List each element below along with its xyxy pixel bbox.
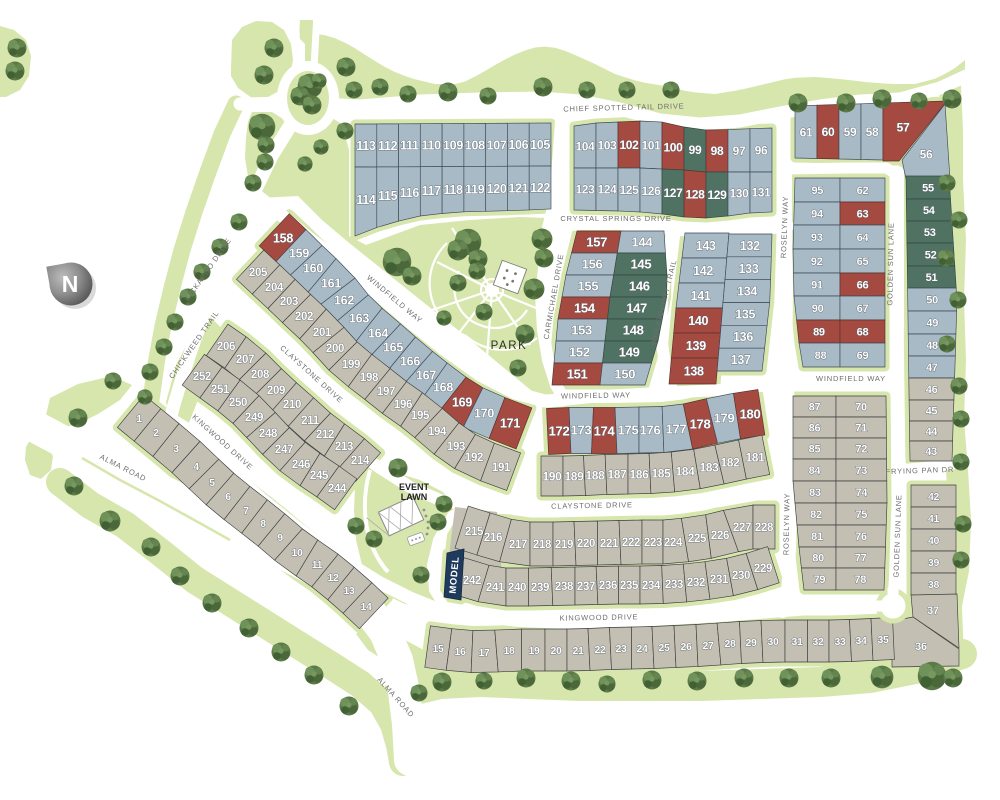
svg-text:80: 80 — [812, 553, 824, 565]
svg-text:64: 64 — [857, 232, 870, 244]
svg-text:1: 1 — [136, 413, 142, 425]
svg-text:120: 120 — [487, 182, 507, 196]
svg-text:101: 101 — [641, 138, 661, 152]
svg-text:233: 233 — [665, 579, 683, 591]
svg-text:188: 188 — [585, 468, 605, 482]
svg-text:247: 247 — [275, 444, 293, 456]
svg-text:118: 118 — [443, 183, 463, 197]
svg-text:212: 212 — [316, 429, 334, 441]
svg-text:138: 138 — [684, 365, 704, 379]
svg-text:93: 93 — [811, 232, 823, 244]
svg-text:81: 81 — [811, 531, 823, 543]
svg-text:GOLDEN SUN LANE: GOLDEN SUN LANE — [885, 222, 895, 305]
svg-text:162: 162 — [334, 294, 354, 308]
svg-text:215: 215 — [465, 526, 484, 538]
svg-text:67: 67 — [857, 303, 869, 315]
svg-text:169: 169 — [452, 396, 472, 410]
svg-text:239: 239 — [531, 582, 549, 594]
svg-text:56: 56 — [920, 147, 933, 161]
svg-text:124: 124 — [597, 183, 617, 197]
svg-text:147: 147 — [626, 301, 647, 316]
svg-text:227: 227 — [733, 522, 751, 534]
svg-text:231: 231 — [710, 574, 729, 586]
svg-text:189: 189 — [564, 469, 584, 483]
svg-text:26: 26 — [680, 641, 692, 653]
svg-text:199: 199 — [342, 359, 360, 371]
svg-text:24: 24 — [636, 643, 648, 655]
svg-text:WINDFIELD WAY: WINDFIELD WAY — [561, 390, 631, 400]
svg-text:95: 95 — [811, 185, 823, 197]
svg-text:111: 111 — [400, 139, 419, 153]
svg-text:76: 76 — [855, 531, 867, 543]
svg-text:207: 207 — [236, 354, 254, 366]
svg-text:186: 186 — [629, 467, 649, 481]
svg-text:16: 16 — [454, 646, 466, 658]
svg-text:250: 250 — [229, 397, 247, 409]
svg-text:141: 141 — [691, 289, 711, 303]
svg-text:75: 75 — [855, 509, 867, 521]
svg-text:74: 74 — [856, 487, 869, 499]
svg-text:134: 134 — [737, 285, 757, 299]
svg-text:228: 228 — [755, 522, 774, 534]
svg-text:72: 72 — [855, 444, 867, 456]
svg-text:143: 143 — [696, 239, 716, 253]
svg-text:18: 18 — [503, 645, 515, 657]
svg-text:ROSELYN WAY: ROSELYN WAY — [781, 493, 791, 556]
svg-text:137: 137 — [731, 353, 751, 367]
svg-text:190: 190 — [542, 469, 562, 483]
svg-text:27: 27 — [702, 640, 714, 652]
svg-text:57: 57 — [897, 120, 910, 134]
svg-text:209: 209 — [267, 385, 285, 397]
svg-text:234: 234 — [642, 580, 661, 592]
svg-text:164: 164 — [368, 327, 388, 341]
svg-text:202: 202 — [295, 311, 313, 323]
svg-text:165: 165 — [383, 341, 403, 355]
svg-text:182: 182 — [720, 455, 740, 469]
svg-text:251: 251 — [211, 384, 230, 396]
svg-text:109: 109 — [443, 139, 463, 153]
svg-text:192: 192 — [465, 452, 483, 464]
svg-text:2: 2 — [153, 427, 159, 439]
svg-text:156: 156 — [582, 257, 603, 272]
svg-text:5: 5 — [209, 477, 215, 489]
svg-text:20: 20 — [550, 645, 562, 657]
svg-text:29: 29 — [745, 637, 757, 649]
svg-text:LAWN: LAWN — [401, 492, 428, 502]
svg-text:4: 4 — [193, 461, 199, 473]
svg-text:131: 131 — [751, 186, 771, 200]
svg-text:40: 40 — [928, 535, 940, 547]
svg-text:97: 97 — [733, 144, 746, 158]
svg-text:86: 86 — [809, 423, 821, 435]
svg-text:114: 114 — [356, 193, 376, 207]
svg-text:12: 12 — [327, 572, 339, 584]
svg-text:145: 145 — [631, 257, 652, 272]
svg-text:84: 84 — [809, 465, 822, 477]
svg-text:110: 110 — [422, 139, 442, 153]
svg-text:7: 7 — [243, 505, 249, 517]
svg-text:168: 168 — [433, 381, 453, 395]
svg-text:171: 171 — [500, 417, 520, 431]
svg-text:198: 198 — [360, 372, 379, 384]
svg-text:KINGWOOD DRIVE: KINGWOOD DRIVE — [560, 612, 639, 622]
svg-text:149: 149 — [619, 345, 640, 360]
svg-text:30: 30 — [767, 636, 779, 648]
svg-text:87: 87 — [809, 402, 821, 414]
svg-text:116: 116 — [400, 186, 420, 200]
svg-text:41: 41 — [928, 513, 940, 525]
svg-text:31: 31 — [791, 636, 803, 648]
svg-text:14: 14 — [360, 601, 372, 613]
svg-text:230: 230 — [732, 570, 750, 582]
svg-text:36: 36 — [915, 641, 927, 653]
svg-text:117: 117 — [422, 184, 442, 198]
svg-text:219: 219 — [555, 539, 573, 551]
svg-text:232: 232 — [687, 577, 705, 589]
svg-text:108: 108 — [465, 138, 485, 152]
svg-text:94: 94 — [811, 209, 824, 221]
svg-text:43: 43 — [925, 446, 937, 458]
svg-text:225: 225 — [688, 533, 707, 545]
svg-text:21: 21 — [572, 645, 584, 657]
svg-text:38: 38 — [928, 579, 940, 591]
svg-text:3: 3 — [173, 443, 179, 455]
svg-text:237: 237 — [577, 581, 595, 593]
svg-text:42: 42 — [928, 491, 940, 503]
svg-text:214: 214 — [351, 455, 370, 467]
svg-text:35: 35 — [877, 634, 889, 646]
svg-text:99: 99 — [689, 143, 702, 157]
svg-text:53: 53 — [924, 227, 936, 239]
svg-text:71: 71 — [855, 423, 867, 435]
svg-text:46: 46 — [926, 384, 938, 396]
svg-text:245: 245 — [310, 470, 329, 482]
svg-text:184: 184 — [675, 464, 695, 478]
svg-text:176: 176 — [640, 423, 661, 438]
svg-text:193: 193 — [447, 441, 465, 453]
svg-text:179: 179 — [714, 411, 735, 426]
svg-text:82: 82 — [810, 509, 822, 521]
svg-text:226: 226 — [711, 530, 729, 542]
svg-text:55: 55 — [922, 183, 934, 195]
svg-text:125: 125 — [619, 183, 639, 197]
svg-text:89: 89 — [813, 327, 825, 339]
svg-text:22: 22 — [594, 644, 606, 656]
svg-text:208: 208 — [251, 369, 270, 381]
svg-text:66: 66 — [857, 280, 869, 292]
svg-text:187: 187 — [607, 467, 627, 481]
svg-text:157: 157 — [586, 235, 607, 250]
svg-text:CLAYSTONE DRIVE: CLAYSTONE DRIVE — [551, 500, 633, 510]
svg-text:90: 90 — [812, 303, 824, 315]
svg-text:PARK: PARK — [491, 340, 528, 352]
svg-text:34: 34 — [855, 635, 867, 647]
svg-text:106: 106 — [508, 138, 528, 152]
svg-text:195: 195 — [411, 410, 430, 422]
svg-text:73: 73 — [855, 465, 867, 477]
svg-text:129: 129 — [707, 188, 727, 202]
svg-text:132: 132 — [740, 239, 760, 253]
svg-text:50: 50 — [926, 295, 938, 307]
svg-text:52: 52 — [925, 250, 937, 262]
svg-text:61: 61 — [800, 125, 813, 139]
svg-text:92: 92 — [811, 256, 823, 268]
svg-text:13: 13 — [343, 585, 355, 597]
svg-text:159: 159 — [289, 247, 309, 261]
svg-text:166: 166 — [400, 355, 420, 369]
svg-text:79: 79 — [814, 574, 826, 586]
svg-text:128: 128 — [685, 188, 705, 202]
svg-text:CRYSTAL SPRINGS DRIVE: CRYSTAL SPRINGS DRIVE — [560, 214, 671, 223]
svg-text:148: 148 — [623, 323, 644, 338]
svg-text:91: 91 — [811, 280, 823, 292]
svg-text:32: 32 — [812, 636, 824, 648]
svg-text:100: 100 — [663, 140, 683, 154]
svg-text:103: 103 — [597, 139, 617, 153]
svg-text:183: 183 — [699, 460, 719, 474]
svg-text:77: 77 — [855, 553, 867, 565]
svg-text:178: 178 — [690, 417, 711, 432]
svg-text:204: 204 — [265, 282, 284, 294]
svg-text:98: 98 — [711, 144, 724, 158]
svg-text:68: 68 — [857, 327, 869, 339]
svg-text:127: 127 — [663, 186, 683, 200]
svg-text:107: 107 — [487, 138, 507, 152]
svg-text:238: 238 — [555, 581, 574, 593]
svg-text:70: 70 — [855, 402, 867, 414]
svg-text:151: 151 — [567, 367, 588, 382]
svg-text:236: 236 — [599, 580, 617, 592]
svg-text:205: 205 — [249, 267, 268, 279]
svg-text:115: 115 — [378, 189, 398, 203]
svg-text:121: 121 — [508, 182, 528, 196]
svg-text:216: 216 — [484, 532, 502, 544]
svg-text:139: 139 — [686, 339, 706, 353]
svg-text:201: 201 — [313, 327, 332, 339]
svg-text:249: 249 — [245, 412, 263, 424]
svg-text:196: 196 — [394, 399, 412, 411]
svg-text:221: 221 — [600, 538, 619, 550]
svg-text:213: 213 — [335, 441, 353, 453]
svg-text:136: 136 — [733, 330, 753, 344]
svg-text:211: 211 — [301, 415, 320, 427]
svg-text:218: 218 — [533, 539, 552, 551]
svg-text:206: 206 — [217, 341, 235, 353]
svg-text:181: 181 — [745, 450, 765, 464]
svg-text:WINDFIELD WAY: WINDFIELD WAY — [816, 374, 886, 383]
svg-text:241: 241 — [486, 582, 505, 594]
svg-text:244: 244 — [328, 483, 347, 495]
svg-text:105: 105 — [530, 138, 550, 152]
svg-text:65: 65 — [857, 256, 869, 268]
svg-text:154: 154 — [574, 301, 596, 316]
svg-text:25: 25 — [658, 642, 670, 654]
svg-text:248: 248 — [259, 428, 278, 440]
svg-text:49: 49 — [926, 318, 938, 330]
svg-text:130: 130 — [729, 187, 749, 201]
svg-text:240: 240 — [508, 582, 526, 594]
svg-text:59: 59 — [844, 125, 857, 139]
svg-text:9: 9 — [277, 532, 283, 544]
svg-text:174: 174 — [594, 424, 616, 439]
svg-text:102: 102 — [619, 138, 639, 152]
svg-text:6: 6 — [225, 491, 231, 503]
svg-text:223: 223 — [644, 537, 662, 549]
svg-text:173: 173 — [571, 423, 592, 438]
svg-text:104: 104 — [575, 140, 595, 154]
svg-text:210: 210 — [283, 399, 301, 411]
svg-text:150: 150 — [614, 367, 635, 382]
svg-text:200: 200 — [326, 343, 344, 355]
svg-text:88: 88 — [815, 350, 827, 362]
svg-text:152: 152 — [569, 345, 590, 360]
svg-text:158: 158 — [273, 232, 293, 246]
svg-text:EVENT: EVENT — [399, 482, 430, 492]
svg-text:10: 10 — [291, 547, 303, 559]
svg-text:194: 194 — [428, 426, 447, 438]
svg-text:112: 112 — [378, 139, 398, 153]
svg-text:119: 119 — [465, 183, 485, 197]
svg-text:69: 69 — [857, 350, 869, 362]
svg-text:222: 222 — [622, 537, 640, 549]
svg-text:224: 224 — [664, 537, 683, 549]
svg-text:23: 23 — [615, 643, 627, 655]
svg-text:144: 144 — [632, 235, 654, 250]
svg-text:44: 44 — [925, 426, 938, 438]
svg-text:113: 113 — [356, 139, 376, 153]
svg-text:153: 153 — [571, 323, 592, 338]
svg-text:62: 62 — [857, 185, 869, 197]
svg-text:161: 161 — [321, 277, 341, 291]
svg-text:11: 11 — [312, 559, 323, 571]
svg-text:252: 252 — [193, 371, 211, 383]
svg-text:246: 246 — [292, 459, 310, 471]
svg-text:177: 177 — [666, 422, 687, 437]
svg-text:37: 37 — [927, 605, 939, 617]
svg-text:47: 47 — [926, 362, 938, 374]
svg-text:140: 140 — [688, 314, 708, 328]
svg-text:78: 78 — [854, 574, 866, 586]
svg-text:235: 235 — [620, 580, 639, 592]
svg-text:126: 126 — [641, 184, 661, 198]
svg-text:58: 58 — [866, 125, 879, 139]
svg-text:175: 175 — [618, 423, 639, 438]
svg-text:170: 170 — [474, 407, 494, 421]
svg-text:60: 60 — [822, 125, 835, 139]
svg-text:48: 48 — [926, 340, 938, 352]
svg-text:8: 8 — [260, 518, 266, 530]
svg-text:63: 63 — [857, 209, 869, 221]
svg-text:180: 180 — [740, 407, 761, 422]
svg-text:17: 17 — [478, 647, 490, 659]
svg-text:54: 54 — [923, 205, 936, 217]
svg-text:33: 33 — [834, 636, 846, 648]
svg-text:197: 197 — [377, 386, 395, 398]
svg-text:229: 229 — [754, 563, 772, 575]
svg-text:83: 83 — [809, 487, 821, 499]
svg-text:39: 39 — [928, 557, 940, 569]
svg-text:19: 19 — [528, 645, 540, 657]
svg-text:45: 45 — [926, 406, 938, 418]
svg-text:172: 172 — [549, 424, 570, 439]
svg-text:123: 123 — [575, 182, 595, 196]
svg-text:146: 146 — [629, 279, 650, 294]
svg-text:242: 242 — [463, 575, 481, 587]
svg-text:185: 185 — [651, 466, 671, 480]
svg-text:155: 155 — [578, 279, 599, 294]
svg-text:28: 28 — [724, 638, 736, 650]
svg-text:220: 220 — [577, 538, 595, 550]
svg-text:191: 191 — [492, 462, 511, 474]
svg-text:160: 160 — [303, 262, 323, 276]
svg-text:217: 217 — [509, 539, 527, 551]
svg-text:15: 15 — [432, 643, 444, 655]
svg-text:122: 122 — [530, 181, 550, 195]
svg-text:96: 96 — [755, 144, 768, 158]
svg-text:N: N — [62, 271, 79, 297]
svg-text:163: 163 — [349, 312, 369, 326]
svg-text:51: 51 — [926, 272, 938, 284]
svg-text:85: 85 — [809, 444, 821, 456]
svg-text:142: 142 — [693, 264, 713, 278]
svg-text:135: 135 — [735, 307, 755, 321]
svg-text:203: 203 — [280, 296, 298, 308]
svg-text:133: 133 — [739, 262, 759, 276]
